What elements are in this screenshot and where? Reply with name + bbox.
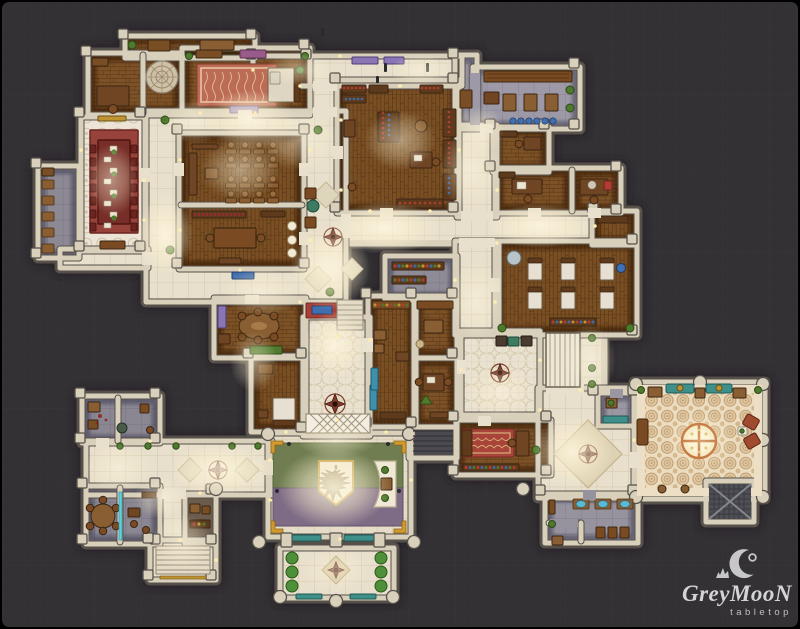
svg-text:tabletop: tabletop — [730, 607, 792, 618]
svg-text:GreyMooN: GreyMooN — [682, 581, 793, 606]
